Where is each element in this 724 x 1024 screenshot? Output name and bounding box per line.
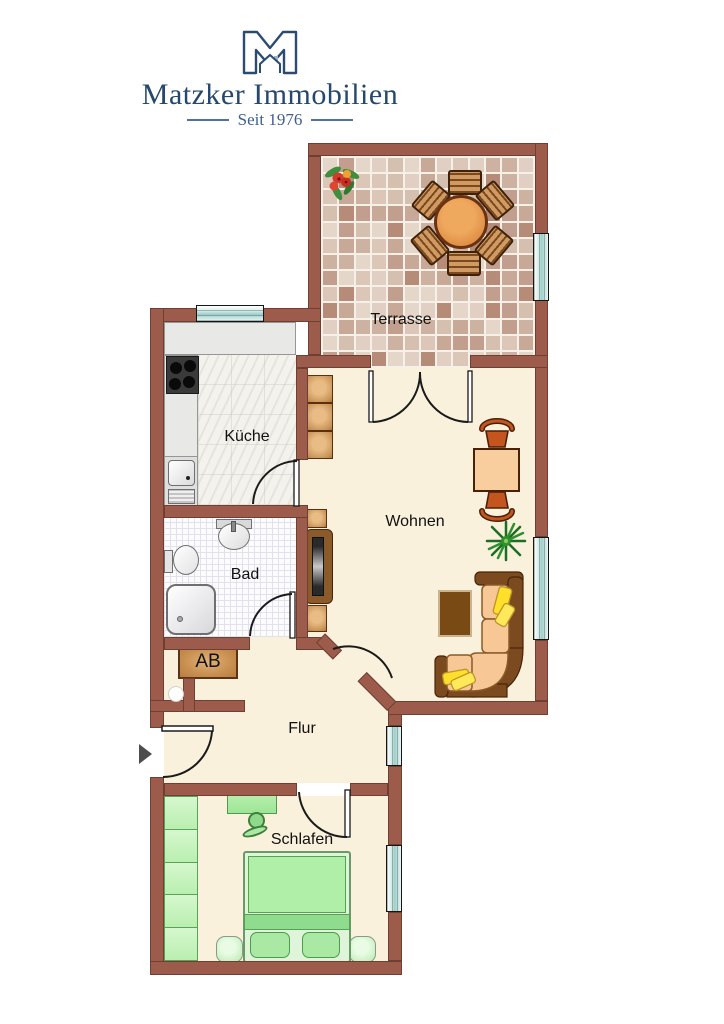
terrace-tile [356,223,370,237]
terrace-tile [502,303,516,317]
terrace-tile [502,174,516,188]
tagline-text: Seit 1976 [238,110,303,130]
terrace-tile [356,271,370,285]
terrace-tile [339,190,353,204]
terrace-tile [388,336,402,350]
brand-title: Matzker Immobilien [110,78,430,112]
terrace-tile [339,223,353,237]
terrace-tile [323,158,337,172]
terrace-tile [470,320,484,334]
terrace-tile [519,190,533,204]
terrace-tile [356,320,370,334]
terrace-tile [356,190,370,204]
bedroom-window [386,845,402,912]
terrace-tile [356,158,370,172]
terrace-tile [405,352,419,366]
terrace-tile [421,287,435,301]
kitchen-window [196,305,264,322]
terrace-tile [486,320,500,334]
room-label-terrasse: Terrasse [370,311,431,329]
hallway-window [386,726,402,766]
wall [308,156,321,355]
terrace-tile [388,223,402,237]
terrace-tile [372,336,386,350]
terrace-tile [388,158,402,172]
terrace-tile [372,190,386,204]
terrace-tile [372,287,386,301]
terrace-tile [470,287,484,301]
terrace-tile [519,239,533,253]
terrace-tile [437,303,451,317]
wall [535,355,548,537]
terrace-tile [339,206,353,220]
terrace-tile [323,336,337,350]
terrace-tile [323,190,337,204]
terrace-tile [323,206,337,220]
terrace-tile [421,352,435,366]
terrace-tile [405,287,419,301]
terrace-tile [519,158,533,172]
cooktop [166,356,199,394]
terrace-tile [372,352,386,366]
tv-cabinet [305,529,333,604]
wall [350,783,388,796]
wall [388,766,402,845]
terrace-tile [453,287,467,301]
wall [150,308,164,728]
terrace-tile [372,223,386,237]
terrace-tile [405,271,419,285]
kitchen-sink-unit [164,456,198,506]
burner-icon [183,376,195,388]
terrace-tile [388,190,402,204]
terrace-tile [519,206,533,220]
wardrobe-section [164,862,198,896]
wall [388,701,548,715]
terrace-tile [372,158,386,172]
coffee-table [438,590,472,637]
sink-basin [168,460,195,486]
terrace-tile [502,287,516,301]
terrace-tile [486,287,500,301]
brand-tagline: Seit 1976 [110,110,430,130]
terrace-round-table [434,195,488,249]
terrace-tile [405,158,419,172]
room-label-wohnen: Wohnen [385,513,444,531]
matzker-m-house-logo-icon [240,28,304,76]
terrace-tile [421,271,435,285]
toilet-bowl [173,545,199,575]
burner-icon [169,378,181,390]
terrace-tile [453,320,467,334]
tagline-rule-left [187,119,229,121]
terrace-tile [502,271,516,285]
terrace-tile [519,255,533,269]
wall [296,355,371,368]
terrace-tile [486,271,500,285]
terrace-tile [356,206,370,220]
terrace-tile [323,255,337,269]
wall [535,640,548,701]
kitchen-counter-top [164,322,296,355]
terrace-tile [339,158,353,172]
burner-icon [170,362,182,374]
shower-tray [166,584,216,635]
faucet-icon [186,476,190,480]
tv-side-cabinet [306,605,327,632]
terrace-tile [356,239,370,253]
terrace-window [533,233,549,301]
double-bed [243,851,351,963]
terrace-tile [502,255,516,269]
burner-icon [184,360,196,372]
terrace-tile [405,174,419,188]
sink-drainer [168,489,195,504]
terrace-tile [453,336,467,350]
dining-table [473,448,520,492]
terrace-tile [421,336,435,350]
terrace-tile [437,352,451,366]
terrace-tile [519,336,533,350]
wall [296,507,308,650]
wall [150,961,402,975]
shelf-cabinet [305,403,333,431]
room-label-ab: AB [195,651,220,673]
terrace-tile [519,223,533,237]
terrace-tile [339,174,353,188]
terrace-tile [405,336,419,350]
wardrobe [164,796,198,961]
terrace-tile [339,239,353,253]
terrace-tile [323,303,337,317]
terrace-tile [339,255,353,269]
room-label-kueche: Küche [224,428,269,446]
terrace-tile [470,303,484,317]
terrace-tile [519,287,533,301]
wall [164,783,297,796]
terrace-tile [453,352,467,366]
terrace-tile [323,271,337,285]
nightstand [216,936,243,963]
terrace-tile [519,303,533,317]
wall [164,637,250,650]
terrace-tile [372,206,386,220]
terrace-tile [388,174,402,188]
bed-pillow [250,932,290,958]
shelf-cabinet [305,375,333,403]
terrace-tile [323,239,337,253]
wardrobe-section [164,829,198,863]
terrace-tile [339,287,353,301]
wall [388,912,402,961]
wall [183,678,195,712]
terrace-tile [339,320,353,334]
terrace-tile [502,158,516,172]
wall [150,777,164,975]
terrace-tile [323,320,337,334]
tv-screen [312,537,324,596]
terrace-tile [486,303,500,317]
nightstand [349,936,376,963]
room-label-schlafen: Schlafen [271,831,333,849]
terrace-tile [388,206,402,220]
bed-blanket-band [244,914,350,930]
tagline-rule-right [311,119,353,121]
bed-duvet [248,856,346,913]
shower-drain-icon [177,616,183,622]
wardrobe-section [164,927,198,961]
terrace-tile [339,303,353,317]
wall [164,505,308,518]
terrace-tile [437,287,451,301]
terrace-tile [356,174,370,188]
wall [308,143,548,156]
terrace-tile [519,174,533,188]
tv-side-cabinet [306,509,327,528]
terrace-chair [448,170,482,195]
wall [296,368,308,460]
terrace-tile [372,255,386,269]
terrace-tile [453,303,467,317]
terrace-tile [437,336,451,350]
wardrobe-section [164,894,198,928]
terrace-tile [323,287,337,301]
bed-pillow [302,932,340,958]
wall [470,355,548,368]
terrace-tile [388,271,402,285]
terrace-tile [502,320,516,334]
floorplan-page: Matzker Immobilien Seit 1976 [0,0,724,1024]
living-room-window [533,537,549,640]
terrace-tile [502,336,516,350]
door-stop-circle [168,686,184,702]
terrace-tile [339,271,353,285]
wardrobe-section [164,796,198,830]
wall [150,700,245,712]
terrace-tile [339,336,353,350]
terrace-tile [421,158,435,172]
toilet-tank [164,550,173,573]
entrance-arrow-icon [139,744,152,764]
room-label-bad: Bad [231,566,259,584]
washbasin-faucet-icon [231,521,236,532]
terrace-tile [356,255,370,269]
terrace-chair [447,251,481,276]
terrace-tile [388,239,402,253]
terrace-tile [356,287,370,301]
terrace-tile [372,174,386,188]
terrace-tile [486,158,500,172]
terrace-tile [519,320,533,334]
terrace-tile [405,255,419,269]
terrace-tile [470,336,484,350]
terrace-tile [372,271,386,285]
terrace-tile [323,223,337,237]
terrace-tile [388,287,402,301]
terrace-tile [437,320,451,334]
terrace-tile [323,174,337,188]
terrace-tile [519,271,533,285]
terrace-tile [356,303,370,317]
room-label-flur: Flur [288,720,316,738]
terrace-tile [356,336,370,350]
terrace-tile [372,239,386,253]
terrace-tile [388,352,402,366]
terrace-tile [486,336,500,350]
shelf-cabinet [305,431,333,459]
terrace-tile [388,255,402,269]
